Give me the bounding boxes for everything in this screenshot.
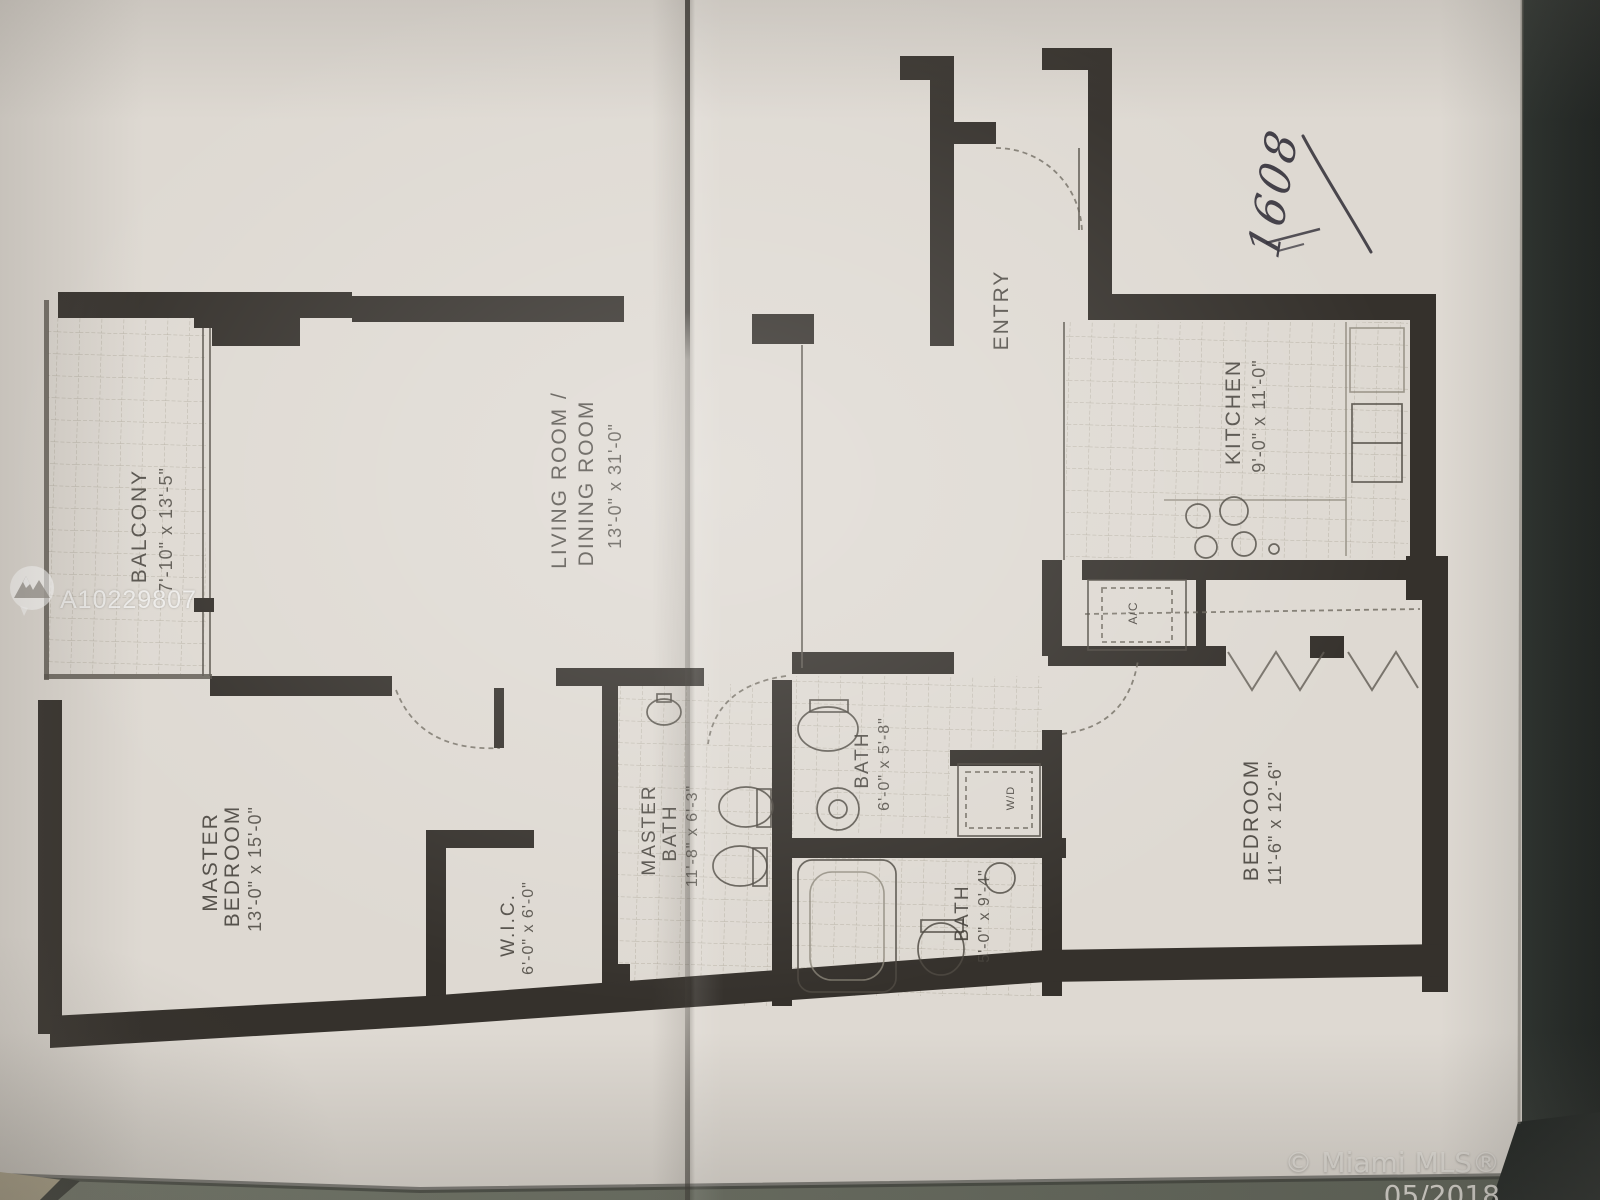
room-dims: 5'-0" x 9'-4" — [976, 869, 993, 963]
room-label-wic: W.I.C. 6'-0" x 6'-0" — [498, 881, 537, 975]
room-label-entry: ENTRY — [990, 270, 1013, 351]
desk-background — [1522, 0, 1600, 1200]
master-hall-door-arc — [396, 690, 500, 748]
slider-post — [194, 314, 214, 328]
room-name: BATH — [952, 884, 973, 941]
wd-closet-box — [958, 764, 1040, 836]
room-dims: 11'-8" x 6'-3" — [684, 785, 701, 887]
desk-corner — [1492, 1112, 1600, 1200]
wall — [772, 680, 792, 1006]
wall — [792, 838, 1066, 858]
wall — [752, 314, 814, 344]
room-name: MASTER — [639, 784, 660, 875]
master-bath-door-jamb — [618, 964, 630, 988]
wall — [792, 652, 954, 674]
wall — [930, 56, 954, 346]
room-dims: 6'-0" x 5'-8" — [876, 717, 893, 811]
master-hall-door-leaf — [494, 688, 504, 748]
floor-plan-drawing: BALCONY 7'-10" x 13'-5" LIVING ROOM / DI… — [0, 0, 1600, 1200]
wall — [952, 122, 996, 144]
wall — [1422, 596, 1448, 992]
room-name: BALCONY — [128, 469, 151, 583]
balcony-tile-grid — [48, 318, 206, 674]
bedroom-door-arc — [1062, 660, 1138, 734]
wall — [1310, 636, 1344, 658]
bath1-tile-grid — [792, 676, 1042, 750]
wall — [1088, 48, 1112, 300]
wall — [1082, 560, 1414, 580]
wall — [1042, 560, 1062, 656]
wall — [212, 316, 300, 346]
wd-closet-label: W/D — [1005, 786, 1017, 810]
room-name: MASTER — [199, 812, 222, 912]
room-dims: 13'-0" x 15'-0" — [245, 806, 265, 932]
room-name: KITCHEN — [1222, 359, 1245, 465]
wall — [352, 296, 624, 322]
wall — [50, 996, 426, 1048]
room-name: W.I.C. — [498, 893, 519, 957]
wall — [1046, 944, 1448, 982]
room-name: BATH — [852, 731, 873, 788]
paper-right-edge — [1519, 0, 1522, 1124]
floor-plan-photo: BALCONY 7'-10" x 13'-5" LIVING ROOM / DI… — [0, 0, 1600, 1200]
bifold-door-icon — [1228, 652, 1324, 690]
room-name: BEDROOM — [1240, 759, 1263, 882]
room-label-living-dining: LIVING ROOM / DINING ROOM 13'-0" x 31'-0… — [548, 391, 625, 569]
wall — [426, 830, 446, 1016]
room-name: ENTRY — [990, 270, 1013, 351]
room-name: BEDROOM — [221, 805, 244, 928]
miami-mls-logo-icon — [6, 564, 58, 616]
listing-id-watermark: A10229807 — [60, 586, 197, 615]
wall — [1088, 294, 1436, 320]
room-dims: 9'-0" x 11'-0" — [1249, 359, 1269, 472]
bifold-door-icon — [1348, 652, 1418, 690]
slider-post — [194, 598, 214, 612]
wall — [602, 680, 618, 1012]
mls-footer-watermark: © Miami MLS® 05/2018 — [1190, 1146, 1500, 1200]
room-dims: 11'-6" x 12'-6" — [1265, 761, 1285, 885]
room-label-master-bedroom: MASTER BEDROOM 13'-0" x 15'-0" — [199, 805, 265, 932]
wall — [556, 668, 704, 686]
room-label-bedroom: BEDROOM 11'-6" x 12'-6" — [1240, 759, 1285, 885]
entry-door-arc — [996, 148, 1082, 232]
room-name: LIVING ROOM / — [548, 391, 571, 569]
room-name: DINING ROOM — [575, 400, 598, 567]
wall — [38, 700, 62, 1034]
ac-closet-label: A/C — [1126, 601, 1140, 624]
wall — [1410, 294, 1436, 566]
room-name: BATH — [660, 804, 681, 861]
room-dims: 13'-0" x 31'-0" — [605, 423, 625, 549]
wd-unit-dashed — [966, 772, 1032, 828]
wall — [210, 676, 392, 696]
room-dims: 6'-0" x 6'-0" — [520, 881, 537, 975]
room-dims: 7'-10" x 13'-5" — [156, 467, 176, 593]
